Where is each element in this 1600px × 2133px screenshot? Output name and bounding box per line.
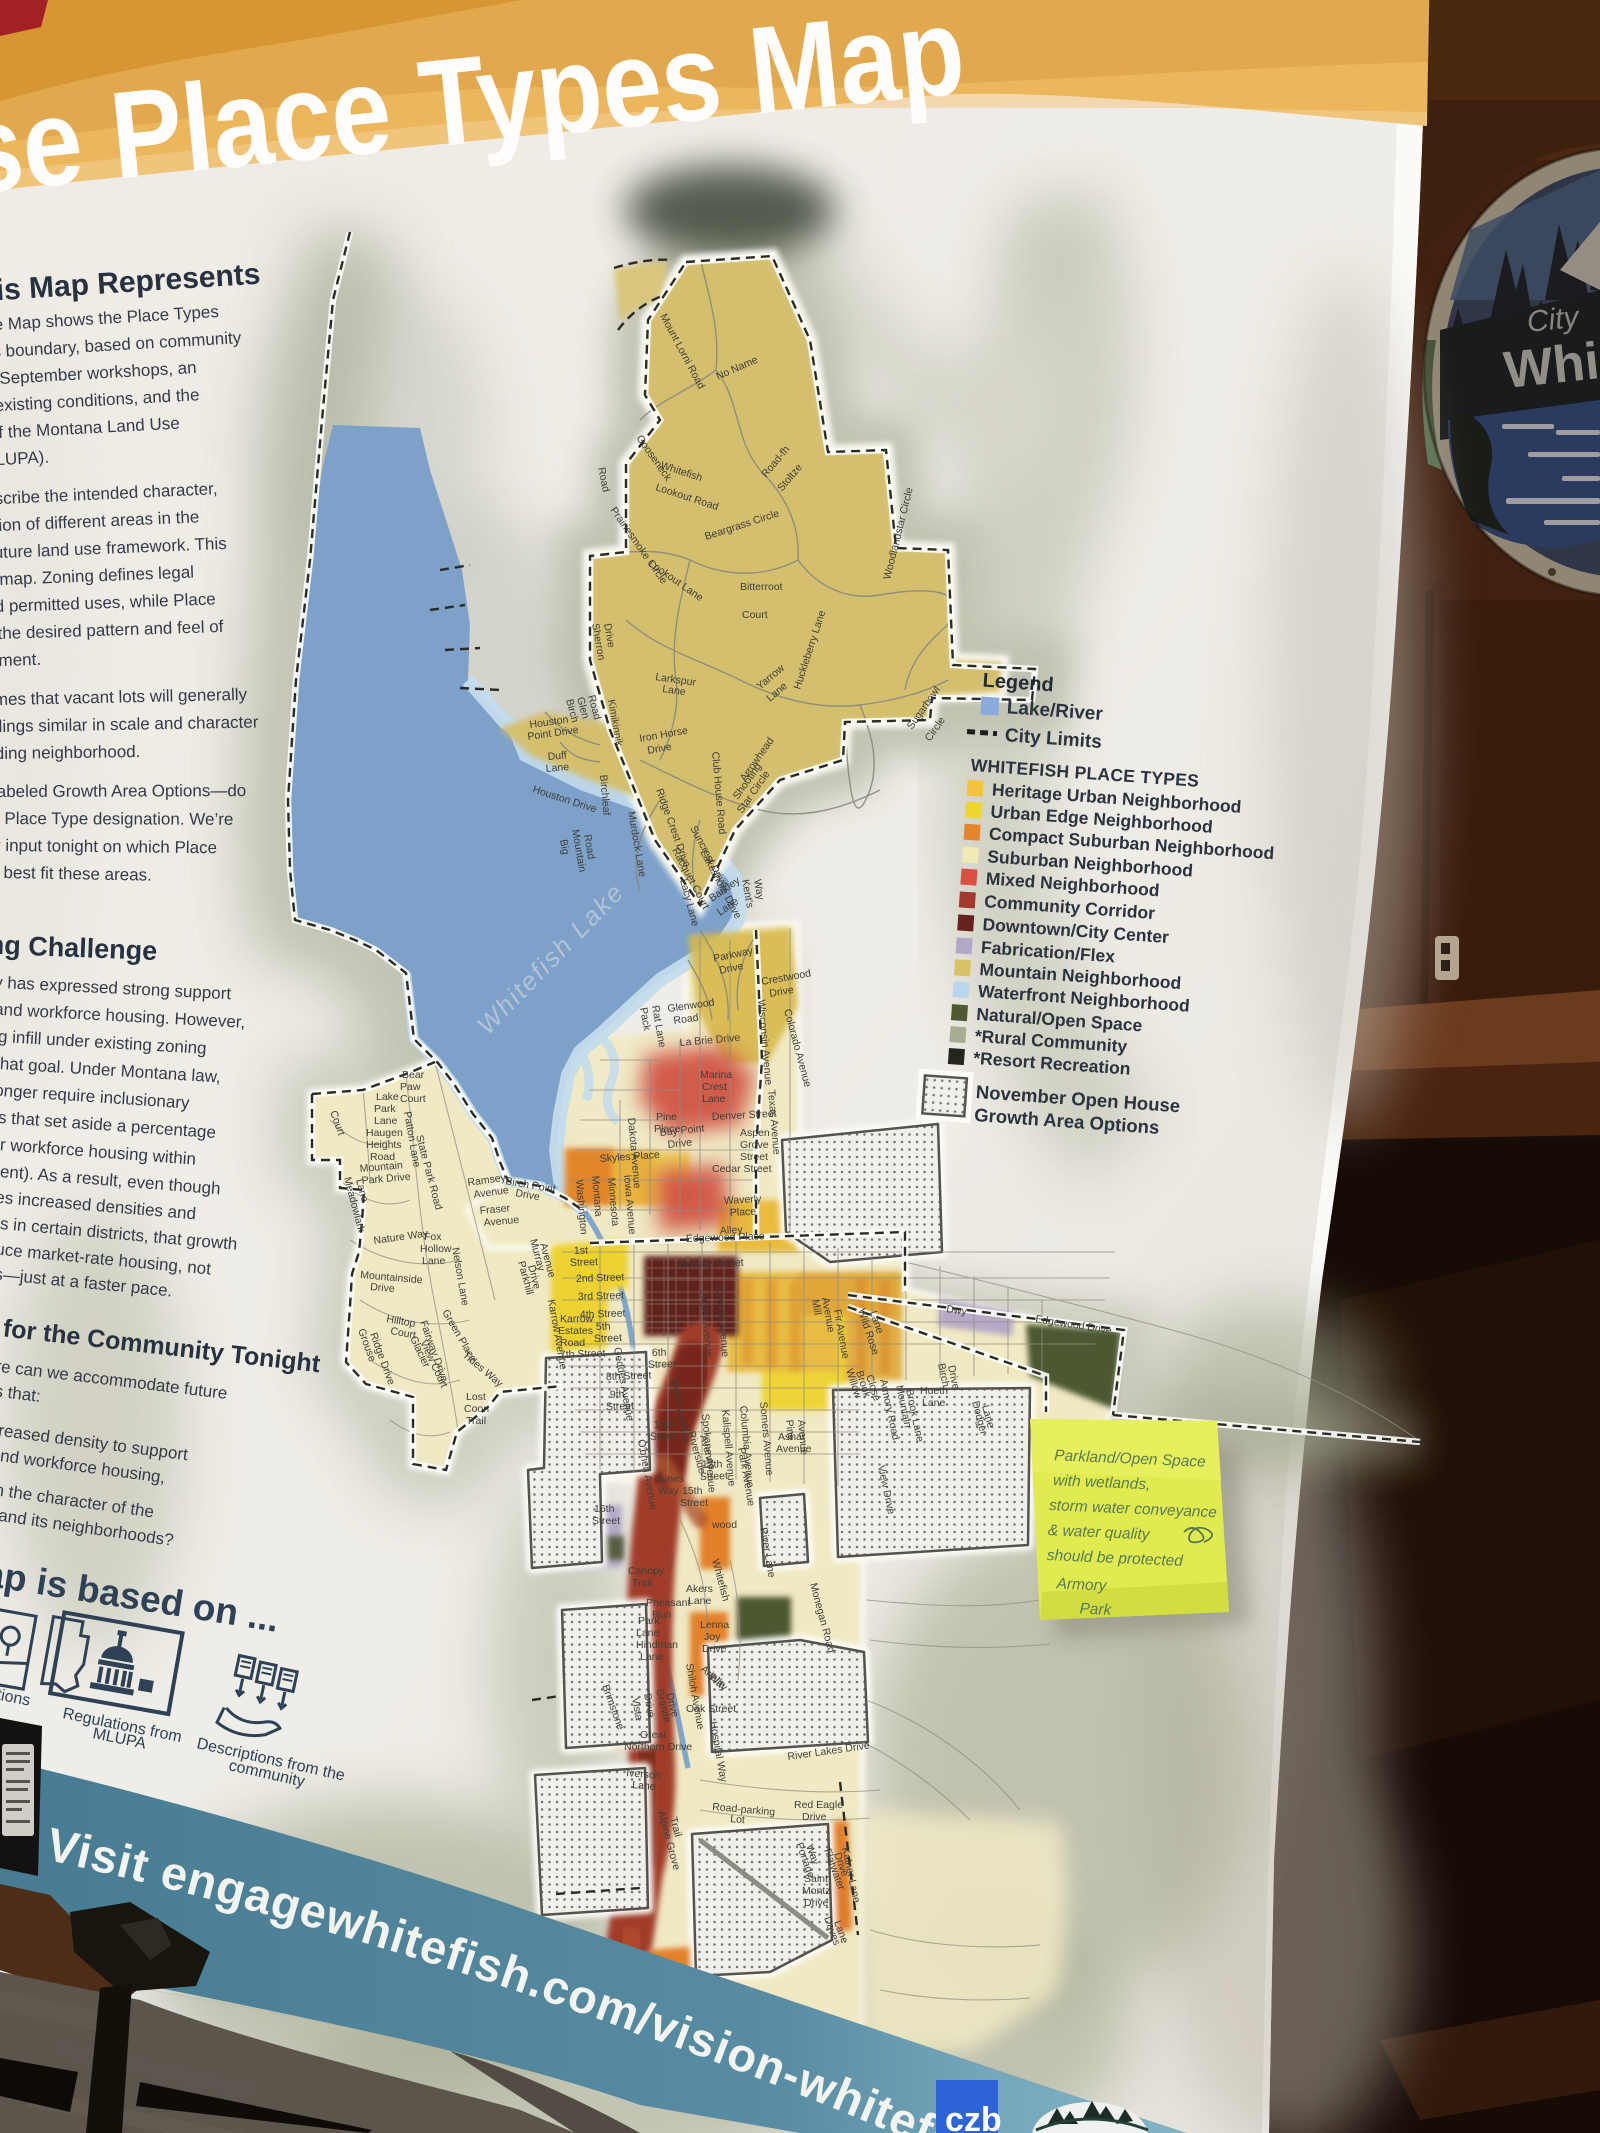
svg-text:Pine: Pine — [656, 1111, 677, 1123]
svg-text:Pheasant: Pheasant — [646, 1597, 690, 1609]
svg-text:Lot: Lot — [730, 1813, 746, 1826]
svg-text:Cedar Street: Cedar Street — [712, 1163, 772, 1175]
svg-text:10th: 10th — [654, 1418, 675, 1431]
svg-text:Junes: Junes — [656, 1473, 684, 1485]
svg-text:Ashar: Ashar — [778, 1431, 806, 1443]
svg-text:13th: 13th — [702, 1458, 723, 1471]
svg-text:Joy: Joy — [704, 1631, 721, 1643]
svg-text:eel best fit these areas.: eel best fit these areas. — [0, 863, 152, 885]
svg-text:Lenna: Lenna — [700, 1619, 729, 1631]
svg-text:Court: Court — [400, 1093, 426, 1105]
svg-text:Haugen: Haugen — [366, 1127, 403, 1139]
svg-text:Lane: Lane — [688, 1595, 712, 1607]
svg-text:Lane: Lane — [374, 1115, 398, 1127]
svg-text:Lane: Lane — [632, 1779, 656, 1793]
svg-text:6th: 6th — [652, 1346, 667, 1359]
svg-text:Lane: Lane — [545, 761, 569, 775]
svg-text:wood: wood — [711, 1519, 737, 1531]
svg-text:Northern Drive: Northern Drive — [624, 1741, 692, 1753]
svg-text:Lost: Lost — [466, 1391, 486, 1403]
svg-text:Street: Street — [700, 1470, 728, 1483]
svg-text:Court: Court — [742, 609, 768, 621]
svg-text:Lane: Lane — [922, 1397, 946, 1409]
svg-text:15th: 15th — [682, 1485, 703, 1497]
svg-text:e a Place Type designation. We: e a Place Type designation. We’re — [0, 809, 233, 829]
svg-text:Place: Place — [654, 1123, 680, 1135]
svg-text:Great: Great — [640, 1729, 666, 1741]
svg-text:Armory: Armory — [1055, 1575, 1108, 1594]
svg-text:Oak Street: Oak Street — [686, 1703, 736, 1715]
svg-text:Street: Street — [592, 1515, 620, 1527]
svg-text:Lane: Lane — [640, 1651, 664, 1663]
svg-text:Heights: Heights — [366, 1139, 402, 1151]
svg-text:Park: Park — [638, 1615, 660, 1627]
svg-text:Avenue: Avenue — [776, 1443, 812, 1455]
svg-text:Coon: Coon — [464, 1403, 489, 1415]
svg-text:Park: Park — [374, 1103, 396, 1115]
svg-text:our input tonight on which Pla: our input tonight on which Place — [0, 836, 217, 858]
svg-text:Hollow: Hollow — [420, 1243, 452, 1255]
svg-text:Crest: Crest — [702, 1081, 727, 1093]
svg-text:Way: Way — [658, 1485, 679, 1497]
svg-text:(MLUPA).: (MLUPA). — [0, 448, 49, 471]
svg-text:ing Challenge: ing Challenge — [0, 929, 158, 966]
svg-text:3rd Street: 3rd Street — [578, 1289, 625, 1303]
svg-text:Drive: Drive — [802, 1811, 827, 1823]
svg-text:Hindman: Hindman — [636, 1639, 678, 1651]
svg-text:Street: Street — [648, 1358, 676, 1371]
svg-text:Akers: Akers — [686, 1583, 713, 1595]
svg-text:Trail: Trail — [632, 1577, 652, 1589]
svg-text:Saint: Saint — [804, 1873, 828, 1885]
svg-text:Street: Street — [740, 1151, 768, 1163]
svg-text:Marina: Marina — [700, 1069, 732, 1081]
svg-text:Drive: Drive — [702, 1643, 727, 1655]
svg-text:Street: Street — [680, 1497, 708, 1509]
svg-text:Red Eagle: Red Eagle — [794, 1799, 843, 1811]
svg-text:Karrow: Karrow — [560, 1313, 594, 1325]
svg-text:Aspen: Aspen — [740, 1127, 770, 1139]
svg-text:Drive: Drive — [370, 1281, 396, 1295]
svg-text:Grove: Grove — [740, 1139, 769, 1151]
svg-text:Lane: Lane — [702, 1093, 726, 1105]
svg-text:Paw: Paw — [400, 1081, 421, 1093]
svg-text:Trail: Trail — [466, 1415, 486, 1427]
svg-text:Street: Street — [594, 1332, 622, 1345]
svg-text:Montz: Montz — [802, 1885, 831, 1897]
svg-text:Place: Place — [730, 1206, 757, 1219]
svg-text:Bitterroot: Bitterroot — [740, 581, 783, 593]
svg-text:7th Street: 7th Street — [560, 1347, 606, 1361]
svg-text:unding neighborhood.: unding neighborhood. — [0, 742, 141, 763]
svg-text:czb: czb — [945, 2101, 1002, 2133]
svg-text:16th: 16th — [594, 1503, 615, 1515]
svg-text:Drive: Drive — [804, 1897, 829, 1909]
svg-text:Canopy: Canopy — [628, 1565, 665, 1577]
svg-text:2nd Street: 2nd Street — [576, 1271, 625, 1285]
svg-text:Lake: Lake — [376, 1091, 399, 1103]
svg-text:Lane: Lane — [636, 1627, 660, 1639]
svg-text:Street: Street — [650, 1430, 678, 1443]
svg-text:—labeled Growth Area Options—d: —labeled Growth Area Options—do — [0, 781, 246, 801]
svg-text:5th: 5th — [596, 1320, 611, 1333]
svg-text:1st: 1st — [574, 1245, 588, 1257]
svg-text:Park: Park — [1079, 1600, 1113, 1618]
svg-text:Railway Street: Railway Street — [676, 1257, 744, 1271]
svg-text:lopment.: lopment. — [0, 650, 41, 671]
svg-text:Lane: Lane — [422, 1255, 446, 1267]
svg-text:Drive: Drive — [667, 1136, 693, 1151]
svg-text:Street: Street — [570, 1256, 598, 1269]
svg-text:Fox: Fox — [424, 1231, 442, 1243]
svg-text:Bear: Bear — [402, 1069, 425, 1081]
svg-text:Waverly: Waverly — [724, 1193, 763, 1207]
